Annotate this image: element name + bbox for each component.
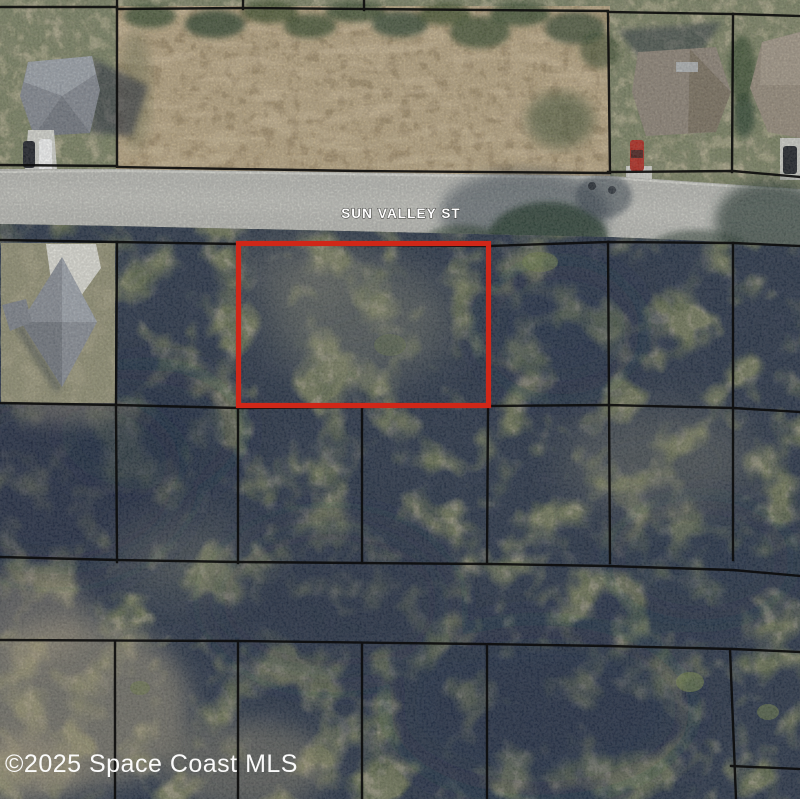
vertical-117-row1 xyxy=(116,242,117,405)
mls-aerial-photo: SUN VALLEY ST ©2025 Space Coast MLS xyxy=(0,0,800,799)
photo-grain xyxy=(0,0,800,799)
aerial-photo-canvas: SUN VALLEY ST ©2025 Space Coast MLS xyxy=(0,0,800,799)
vertical-117-row2 xyxy=(116,405,117,562)
street-label: SUN VALLEY ST xyxy=(341,206,461,221)
vertical-733-top xyxy=(732,14,733,172)
boundary-left-165 xyxy=(0,165,117,166)
watermark-text: ©2025 Space Coast MLS xyxy=(5,750,298,778)
